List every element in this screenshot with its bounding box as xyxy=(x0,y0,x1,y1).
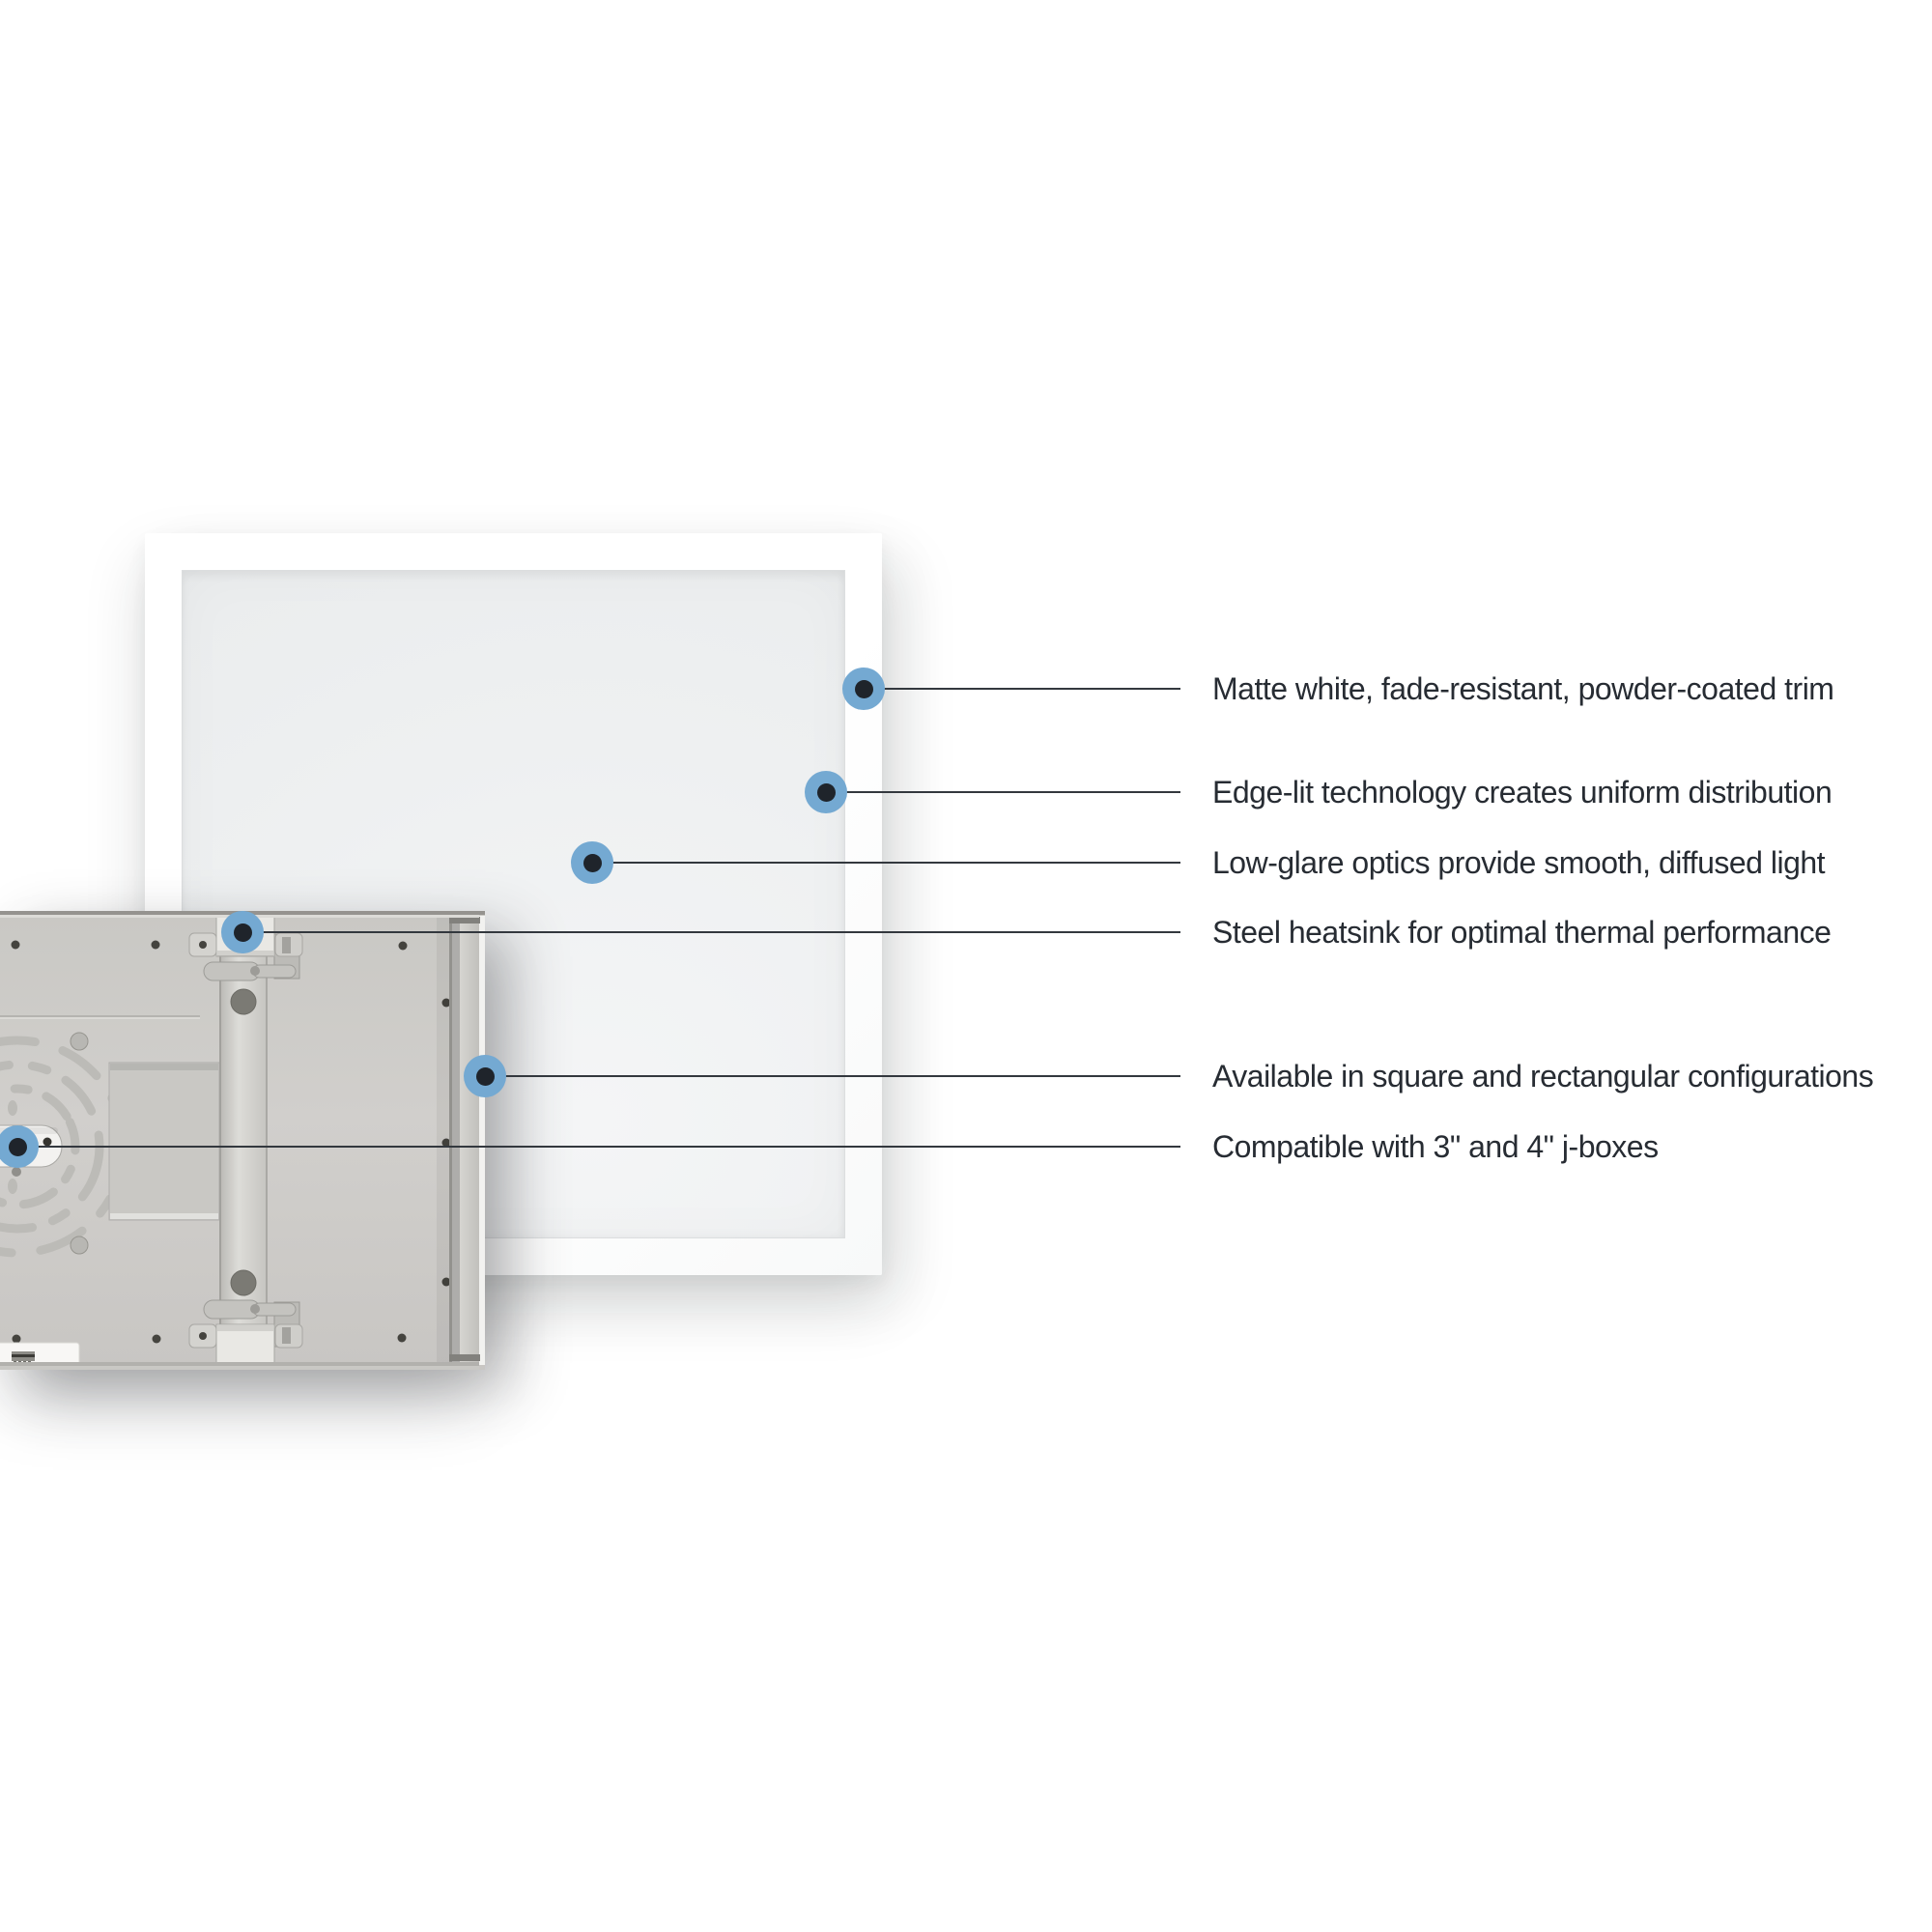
callout-label-jbox: Compatible with 3" and 4" j-boxes xyxy=(1212,1126,1659,1167)
driver-pocket xyxy=(109,1063,219,1220)
callout-line-edge-lit xyxy=(826,791,1180,793)
callout-dot-configurations xyxy=(464,1055,506,1097)
callout-dot-inner xyxy=(583,854,602,872)
callout-label-trim: Matte white, fade-resistant, powder-coat… xyxy=(1212,668,1833,709)
callout-dot-inner xyxy=(476,1067,495,1086)
callout-line-jbox xyxy=(17,1146,1180,1148)
panel-edge-flange xyxy=(437,911,485,1370)
led-panel-back-view xyxy=(0,911,485,1370)
callout-dot-optics xyxy=(571,841,613,884)
callout-line-heatsink xyxy=(242,931,1180,933)
heatsink-illustration xyxy=(0,911,485,1370)
product-feature-diagram: Matte white, fade-resistant, powder-coat… xyxy=(0,0,1932,1932)
callout-label-edge-lit: Edge-lit technology creates uniform dist… xyxy=(1212,772,1832,812)
callout-dot-inner xyxy=(817,783,836,802)
callout-line-configurations xyxy=(485,1075,1180,1077)
callout-dot-inner xyxy=(855,680,873,698)
callout-dot-inner xyxy=(234,923,252,942)
callout-label-heatsink: Steel heatsink for optimal thermal perfo… xyxy=(1212,912,1831,952)
callout-dot-trim xyxy=(842,668,885,710)
callout-label-configurations: Available in square and rectangular conf… xyxy=(1212,1056,1873,1096)
callout-dot-heatsink xyxy=(221,911,264,953)
callout-line-optics xyxy=(592,862,1180,864)
callout-line-trim xyxy=(864,688,1180,690)
callout-dot-edge-lit xyxy=(805,771,847,813)
callout-label-optics: Low-glare optics provide smooth, diffuse… xyxy=(1212,842,1825,883)
callout-dot-inner xyxy=(9,1138,27,1156)
